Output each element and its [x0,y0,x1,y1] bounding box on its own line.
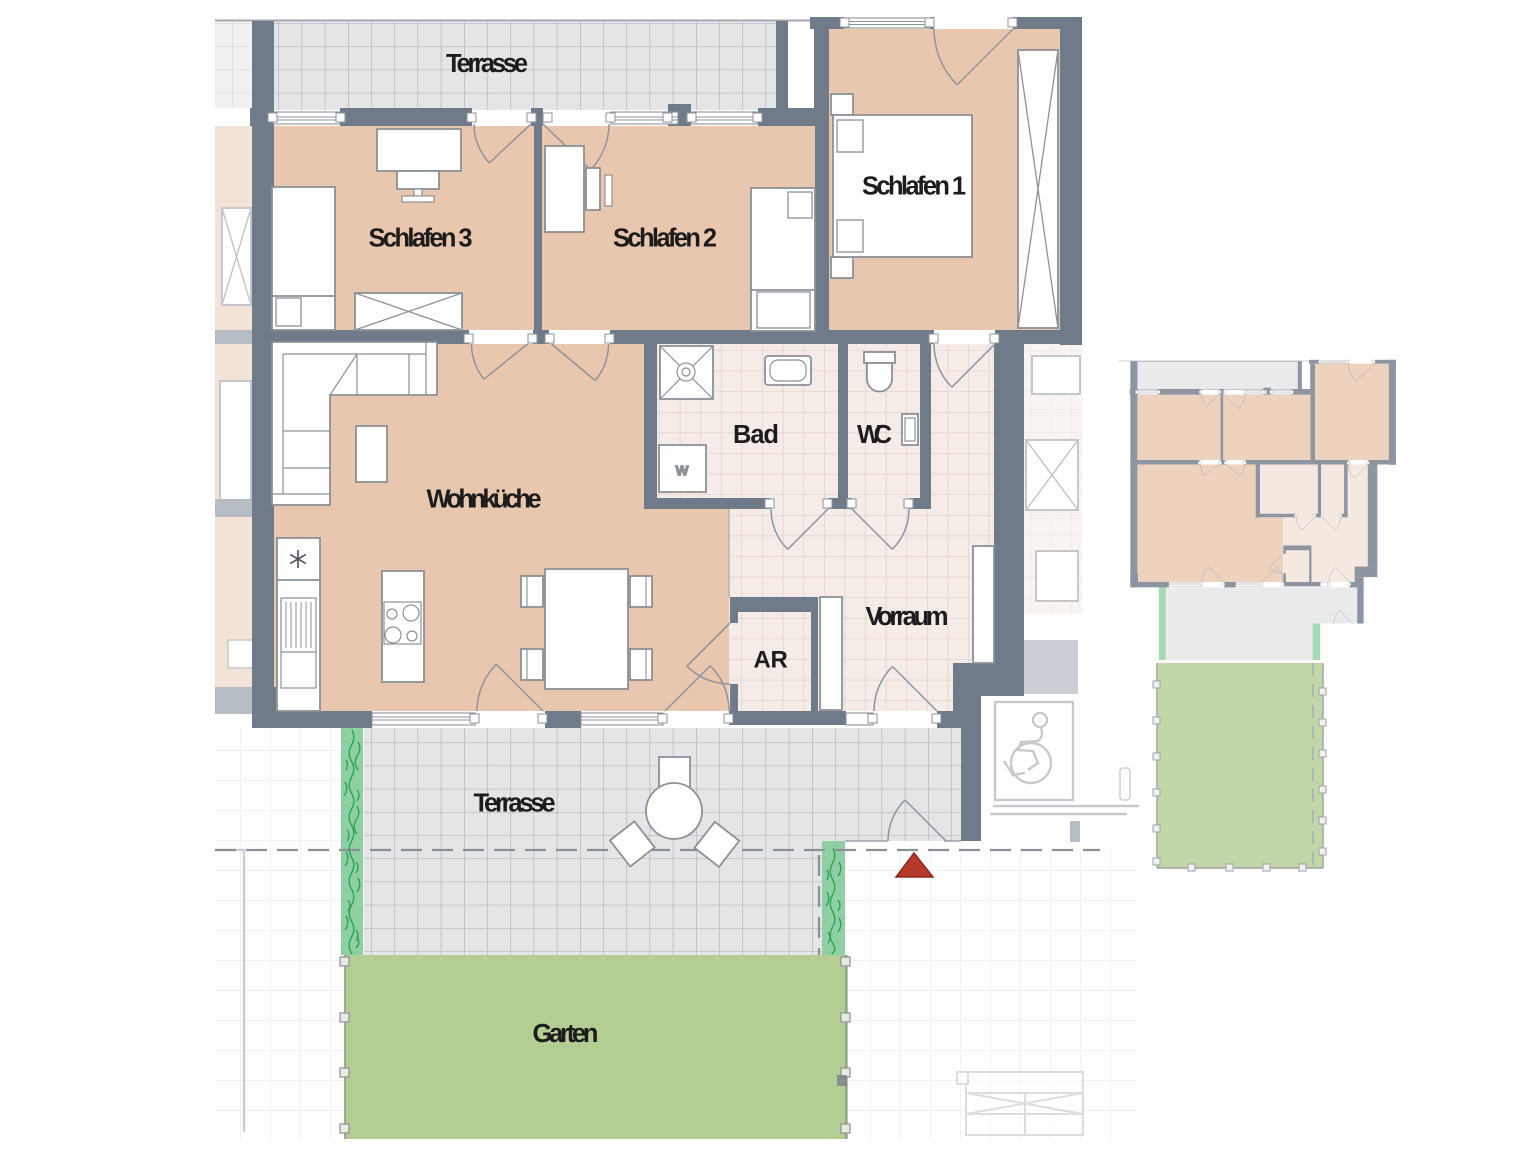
svg-text:Schlafen 2: Schlafen 2 [613,225,717,253]
svg-text:AR: AR [753,647,787,674]
svg-text:Garten: Garten [533,1020,599,1048]
svg-text:Schlafen 1: Schlafen 1 [862,173,966,201]
svg-text:WC: WC [857,421,892,449]
svg-text:Vorraum: Vorraum [866,603,949,631]
svg-text:Terrasse: Terrasse [446,50,528,78]
svg-text:w: w [675,460,689,479]
svg-text:Wohnküche: Wohnküche [427,486,542,514]
svg-text:Bad: Bad [733,421,779,449]
svg-text:Terrasse: Terrasse [474,790,556,818]
svg-text:Schlafen 3: Schlafen 3 [369,225,473,253]
